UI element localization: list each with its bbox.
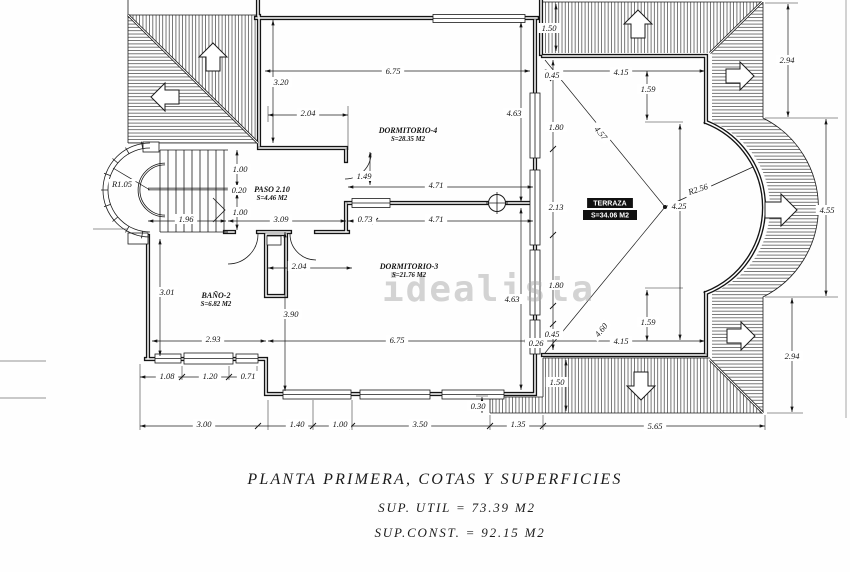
dimension-value: 1.59	[641, 84, 657, 94]
dimension-label: 0.45	[541, 70, 563, 80]
room-label: DORMITORIO-4S=28.35 M2	[378, 126, 438, 143]
dimension-value: 1.00	[233, 164, 249, 174]
useful-surface-text: SUP. UTIL = 73.39 M2	[378, 500, 536, 515]
dimension-label: 1.50	[546, 377, 568, 387]
dimension-label: 5.65	[644, 421, 666, 431]
dimension-label: 2.94	[776, 55, 798, 65]
dimension-value: 2.04	[301, 108, 317, 118]
dimension-label: 4.55	[816, 205, 838, 215]
dimension-value: 1.08	[160, 371, 176, 381]
dimension-value: 1.80	[549, 122, 565, 132]
dimension-label: 1.00	[229, 164, 251, 174]
dimension-value: R2.56	[686, 181, 710, 197]
dimension-label: 1.80	[545, 122, 567, 132]
dimension-label: 1.49	[353, 171, 375, 181]
dimension-label: 0.71	[237, 371, 259, 381]
dimension-value: 4.25	[672, 201, 687, 211]
door-arc-dormitorio3	[290, 234, 316, 260]
room-name: DORMITORIO-4	[378, 126, 438, 135]
dimension-value: 3.90	[283, 309, 300, 319]
dimension-value: 4.15	[614, 67, 629, 77]
dimension-label: 4.15	[610, 336, 632, 346]
dimension-value: 0.30	[471, 401, 487, 411]
dimension-label: 2.04	[288, 261, 310, 271]
dimension-value: 2.93	[206, 334, 221, 344]
dimension-value: 1.35	[511, 419, 526, 429]
dimension-label: 1.80	[545, 280, 567, 290]
dimension-value: 0.45	[545, 329, 560, 339]
dimension-label: 4.71	[425, 214, 447, 224]
dimension-value: 2.13	[549, 202, 564, 212]
built-surface-text: SUP.CONST. = 92.15 M2	[374, 525, 545, 540]
shaft-box	[267, 236, 281, 245]
title-block: PLANTA PRIMERA, COTAS Y SUPERFICIES SUP.…	[246, 471, 622, 540]
dimension-label: 3.09	[270, 214, 292, 224]
dimension-label: 3.00	[193, 419, 215, 429]
room-name: TERRAZA	[593, 201, 626, 208]
dimension-label: 4.57	[590, 121, 612, 145]
dimension-value: 2.04	[292, 261, 308, 271]
column-crosshair	[486, 192, 508, 214]
dimension-label: 0.45	[541, 329, 563, 339]
stair-spiral-arcs	[103, 143, 150, 237]
dimension-label: 4.60	[590, 318, 612, 342]
dimension-label: 0.20	[228, 185, 250, 195]
room-name: DORMITORIO-3	[379, 262, 439, 271]
dimension-label: 2.13	[545, 202, 567, 212]
dimension-label: 4.63	[503, 108, 525, 118]
dimension-label: 0.30	[467, 401, 489, 411]
room-area: S=21.76 M2	[392, 272, 427, 279]
dimension-value: 0.20	[232, 185, 248, 195]
dimension-label: 1.00	[329, 419, 351, 429]
dimension-label: 1.35	[507, 419, 529, 429]
room-area: S=6.82 M2	[201, 301, 232, 308]
dimension-value: 3.00	[196, 419, 213, 429]
dimension-label: 1.59	[637, 84, 659, 94]
door-arc-bano2	[228, 234, 258, 264]
floor-plan-scan: idealista 6.753.202.041.000.201.00R1.051…	[0, 0, 850, 572]
dimension-label: 1.59	[637, 317, 659, 327]
dimension-value: 0.73	[358, 214, 373, 224]
dimension-label: 1.08	[156, 371, 178, 381]
dimension-value: 4.55	[820, 205, 835, 215]
dimension-value: 3.01	[159, 287, 175, 297]
dimension-label: 3.01	[156, 287, 178, 297]
room-label: BAÑO-2S=6.82 M2	[201, 291, 232, 308]
dimension-label: 0.26	[525, 338, 547, 348]
dimension-label: 3.50	[409, 419, 431, 429]
dimension-value: 3.50	[412, 419, 429, 429]
dimension-value: 1.20	[203, 371, 219, 381]
dimension-value: 1.00	[333, 419, 349, 429]
room-label: PASO 2.10S=4.46 M2	[254, 185, 290, 202]
dimension-value: 4.63	[505, 294, 520, 304]
dimension-value: 0.71	[241, 371, 256, 381]
dimension-label: 0.73	[354, 214, 376, 224]
dimension-label: R1.05	[109, 179, 136, 189]
plan-title: PLANTA PRIMERA, COTAS Y SUPERFICIES	[246, 471, 622, 488]
dimension-value: 0.26	[529, 338, 545, 348]
dimension-value: 1.40	[290, 419, 306, 429]
room-area: S=4.46 M2	[257, 195, 288, 202]
dimension-value: 1.50	[550, 377, 566, 387]
dimension-value: 2.94	[785, 351, 801, 361]
dimension-value: 2.94	[780, 55, 796, 65]
dimension-label: 4.71	[425, 180, 447, 190]
dimension-value: 3.09	[273, 214, 290, 224]
stair-newel-bottom	[128, 233, 148, 244]
dimension-value: 4.15	[614, 336, 629, 346]
dimension-label: 6.75	[386, 335, 408, 345]
floor-plan-canvas: idealista 6.753.202.041.000.201.00R1.051…	[0, 0, 850, 572]
dimension-label: 3.90	[280, 309, 302, 319]
dimension-value: 5.65	[648, 421, 663, 431]
dimension-value: 3.20	[273, 77, 290, 87]
dimension-value: 1.59	[641, 317, 657, 327]
stair-spiral-ticks	[101, 142, 143, 239]
dimension-label: R2.56	[684, 180, 713, 198]
room-area: S=34.06 M2	[591, 213, 629, 220]
dimension-value: 1.49	[357, 171, 373, 181]
dimension-label: 2.94	[781, 351, 803, 361]
dimension-label: 3.20	[270, 77, 292, 87]
dimension-value: 1.00	[233, 207, 249, 217]
room-name: PASO 2.10	[254, 185, 290, 194]
dimension-label: 4.63	[501, 294, 523, 304]
dimension-label: 2.93	[202, 334, 224, 344]
dimension-label: 4.15	[610, 67, 632, 77]
dimension-label: 1.50	[538, 23, 560, 33]
dimension-label: 2.04	[297, 108, 319, 118]
dimension-value: 0.45	[545, 70, 560, 80]
stair-direction-arrow	[213, 198, 225, 222]
dimension-value: 1.80	[549, 280, 565, 290]
room-name: BAÑO-2	[201, 291, 231, 300]
dimension-value: 4.71	[429, 180, 444, 190]
dimension-value: 6.75	[386, 66, 401, 76]
dimension-label: 1.20	[199, 371, 221, 381]
dimension-value: 4.63	[507, 108, 522, 118]
dimension-value: 4.71	[429, 214, 444, 224]
dimension-label: 6.75	[382, 66, 404, 76]
dimension-value: 1.50	[542, 23, 558, 33]
dimension-label: 4.25	[668, 201, 690, 211]
dimension-label: 1.40	[286, 419, 308, 429]
dimension-value: 6.75	[390, 335, 405, 345]
dimension-label: 1.00	[229, 207, 251, 217]
dimension-value: 1.96	[179, 214, 195, 224]
room-label: TERRAZAS=34.06 M2	[583, 198, 637, 220]
dimension-label: 1.96	[175, 214, 197, 224]
room-area: S=28.35 M2	[391, 136, 426, 143]
dimension-value: R1.05	[111, 179, 132, 189]
